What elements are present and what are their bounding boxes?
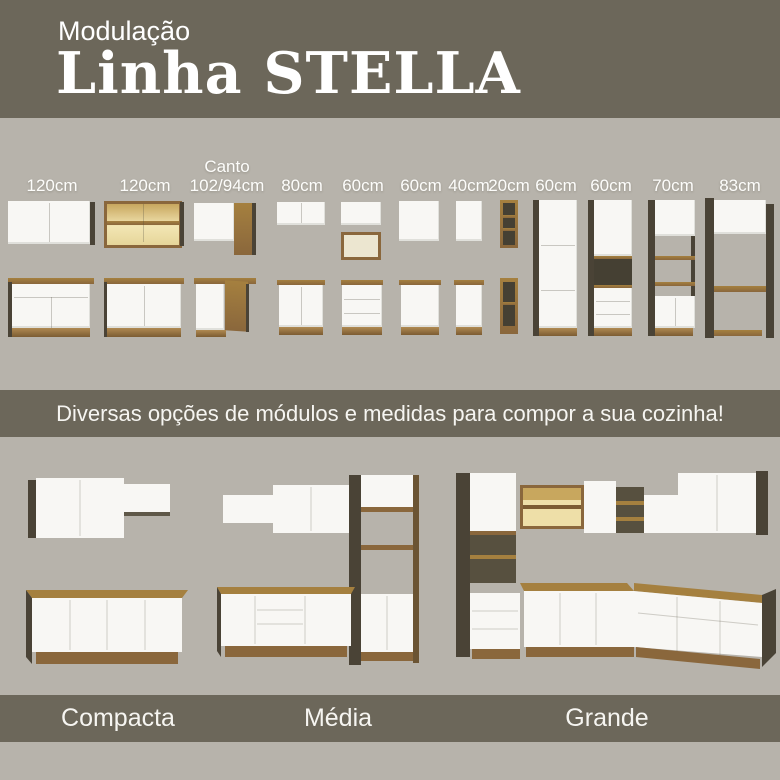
banner-text: Diversas opções de módulos e medidas par… [0,390,780,437]
kitchen-grande-illustration [442,445,777,695]
module-size-label: 40cm [448,176,490,196]
module-wall-120: 120cm [8,118,96,390]
module-fridge-hutch-83: 83cm [705,118,775,390]
module-size-label: 80cm [281,176,323,196]
module-wall-60-niche: 60cm [341,118,385,390]
module-size-label: 120cm [26,176,77,196]
module-size-label-top: Canto [204,157,249,177]
module-size-label: 60cm [400,176,442,196]
kitchen-label-grande: Grande [565,695,648,742]
module-size-label: 83cm [719,176,761,196]
module-corner: Canto 102/94cm [194,118,260,390]
kitchens-section [0,437,780,695]
header: Modulação Linha STELLA [0,0,780,118]
product-infographic: Modulação Linha STELLA 120cm 120cm [0,0,780,780]
module-size-label: 60cm [590,176,632,196]
module-size-label: 120cm [119,176,170,196]
banner: Diversas opções de módulos e medidas par… [0,390,780,437]
module-size-label: 102/94cm [190,176,265,196]
module-wall-60: 60cm [399,118,443,390]
kitchen-label-media: Média [304,695,372,742]
module-tower-60: 60cm [533,118,579,390]
module-glass-120: 120cm [104,118,186,390]
page-title: Linha STELLA [56,40,521,107]
module-tower-shelves-70: 70cm [648,118,698,390]
module-wall-40: 40cm [453,118,485,390]
module-size-label: 20cm [488,176,530,196]
module-shelf-20: 20cm [498,118,520,390]
kitchen-media-illustration [205,445,440,695]
module-size-label: 70cm [652,176,694,196]
module-size-label: 60cm [342,176,384,196]
footer: Compacta Média Grande [0,695,780,742]
module-tower-oven-60: 60cm [588,118,634,390]
kitchen-compacta-illustration [6,450,206,690]
module-size-label: 60cm [535,176,577,196]
module-wall-80: 80cm [277,118,327,390]
kitchen-label-compacta: Compacta [61,695,175,742]
modules-section: 120cm 120cm [0,118,780,390]
